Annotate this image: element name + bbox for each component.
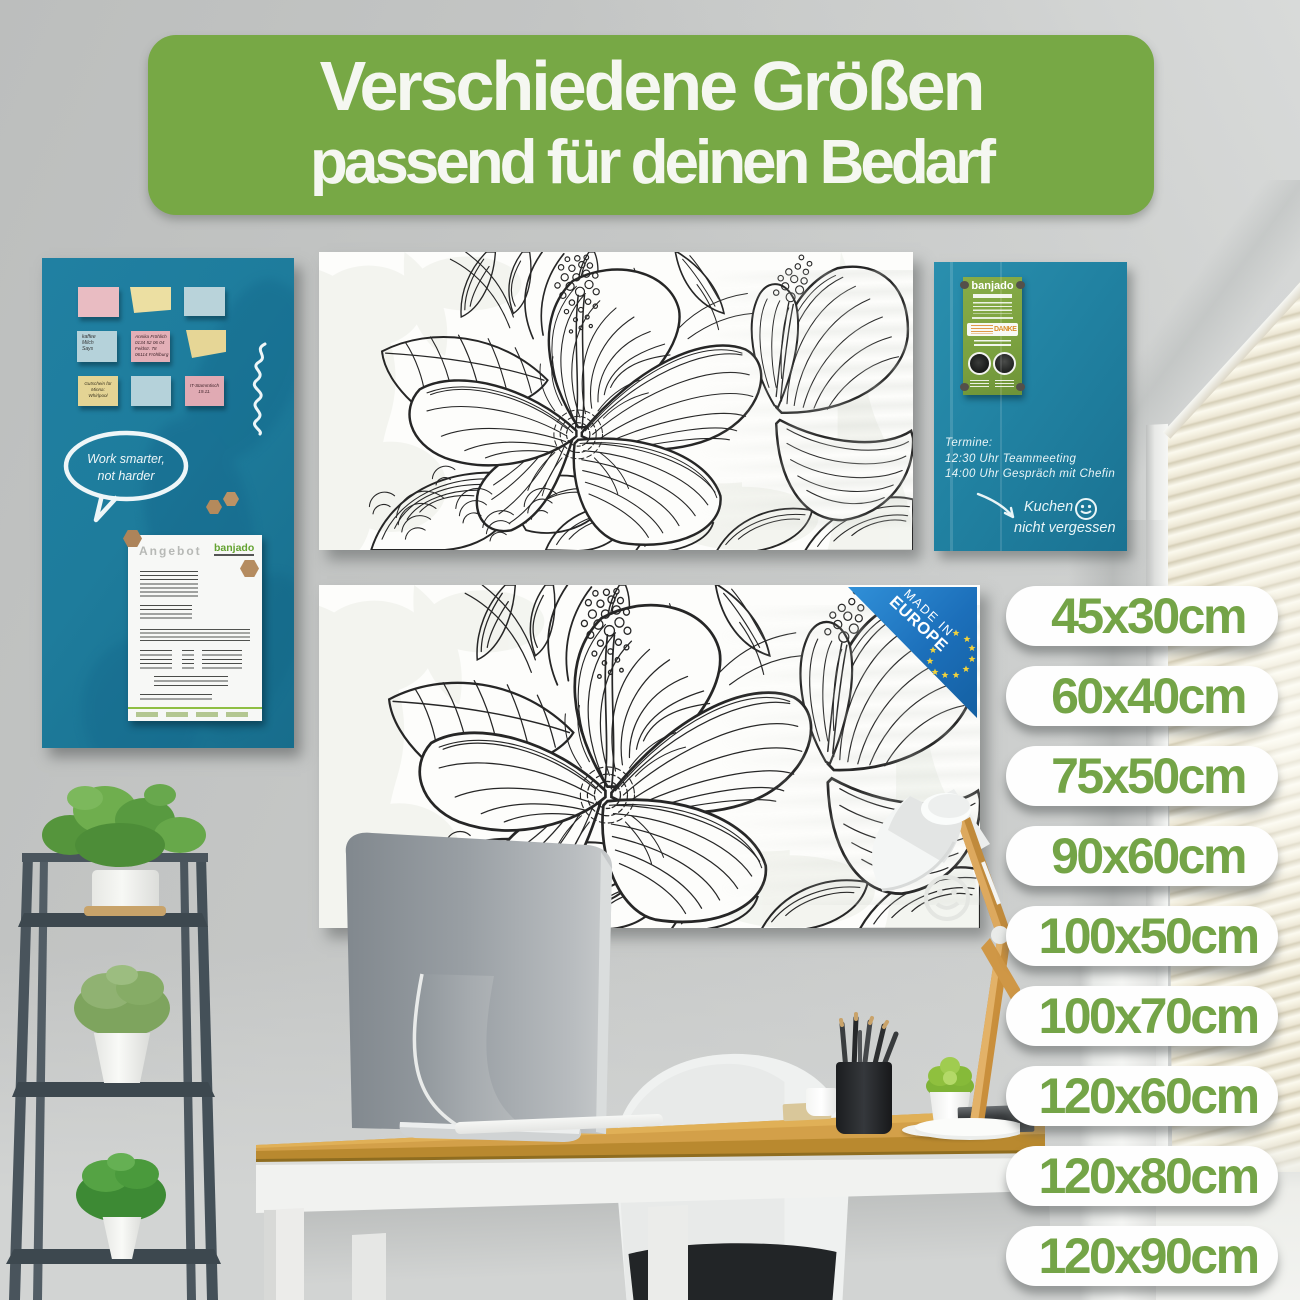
svg-text:Work smarter,: Work smarter, (87, 452, 165, 466)
svg-text:not harder: not harder (98, 469, 156, 483)
